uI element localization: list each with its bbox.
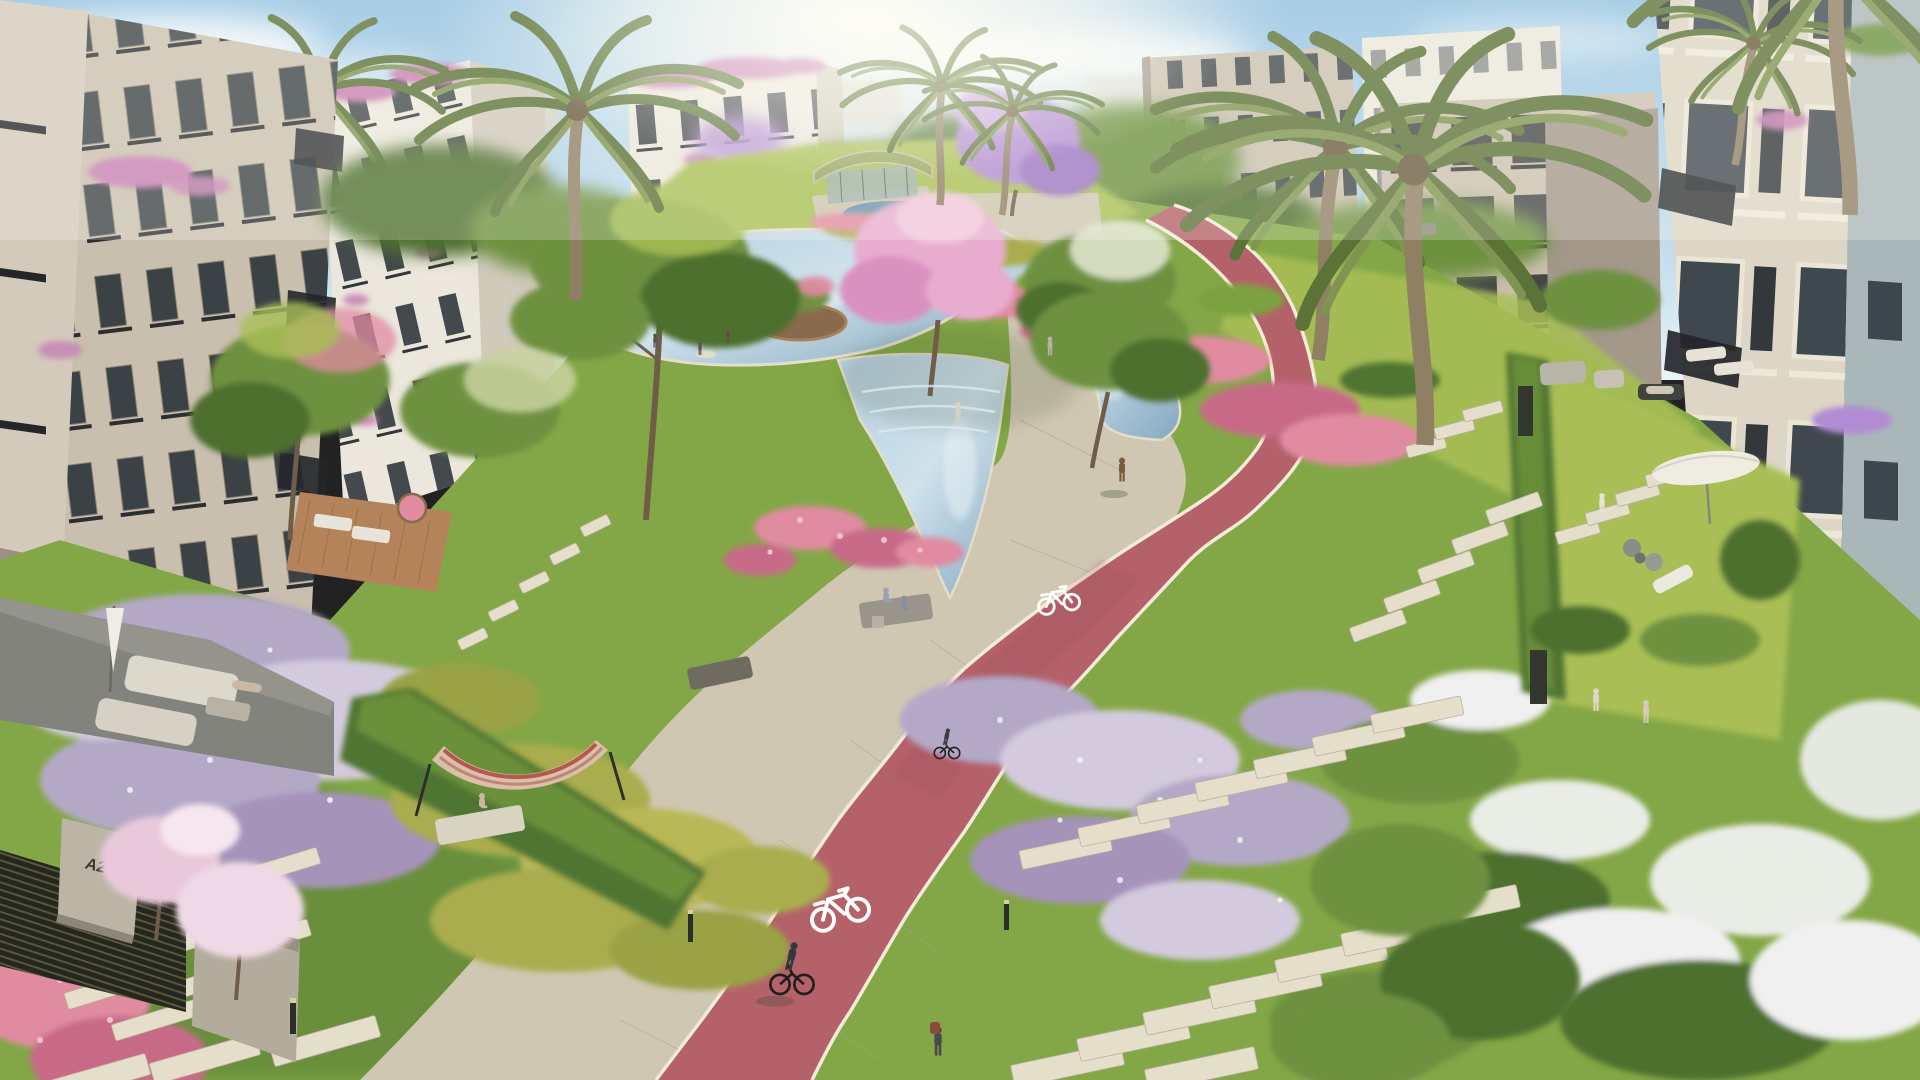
person-lying [1646,386,1674,394]
suitcase [872,616,884,628]
garden-sofa [1539,360,1586,385]
scene: "" [0,0,1920,1080]
garden-chair [1645,553,1663,571]
planter [398,494,426,522]
gate-post [1530,650,1547,704]
compound-aerial-render: "" [0,0,1920,1080]
gate-post [1518,386,1533,436]
garden-table [1635,553,1646,564]
